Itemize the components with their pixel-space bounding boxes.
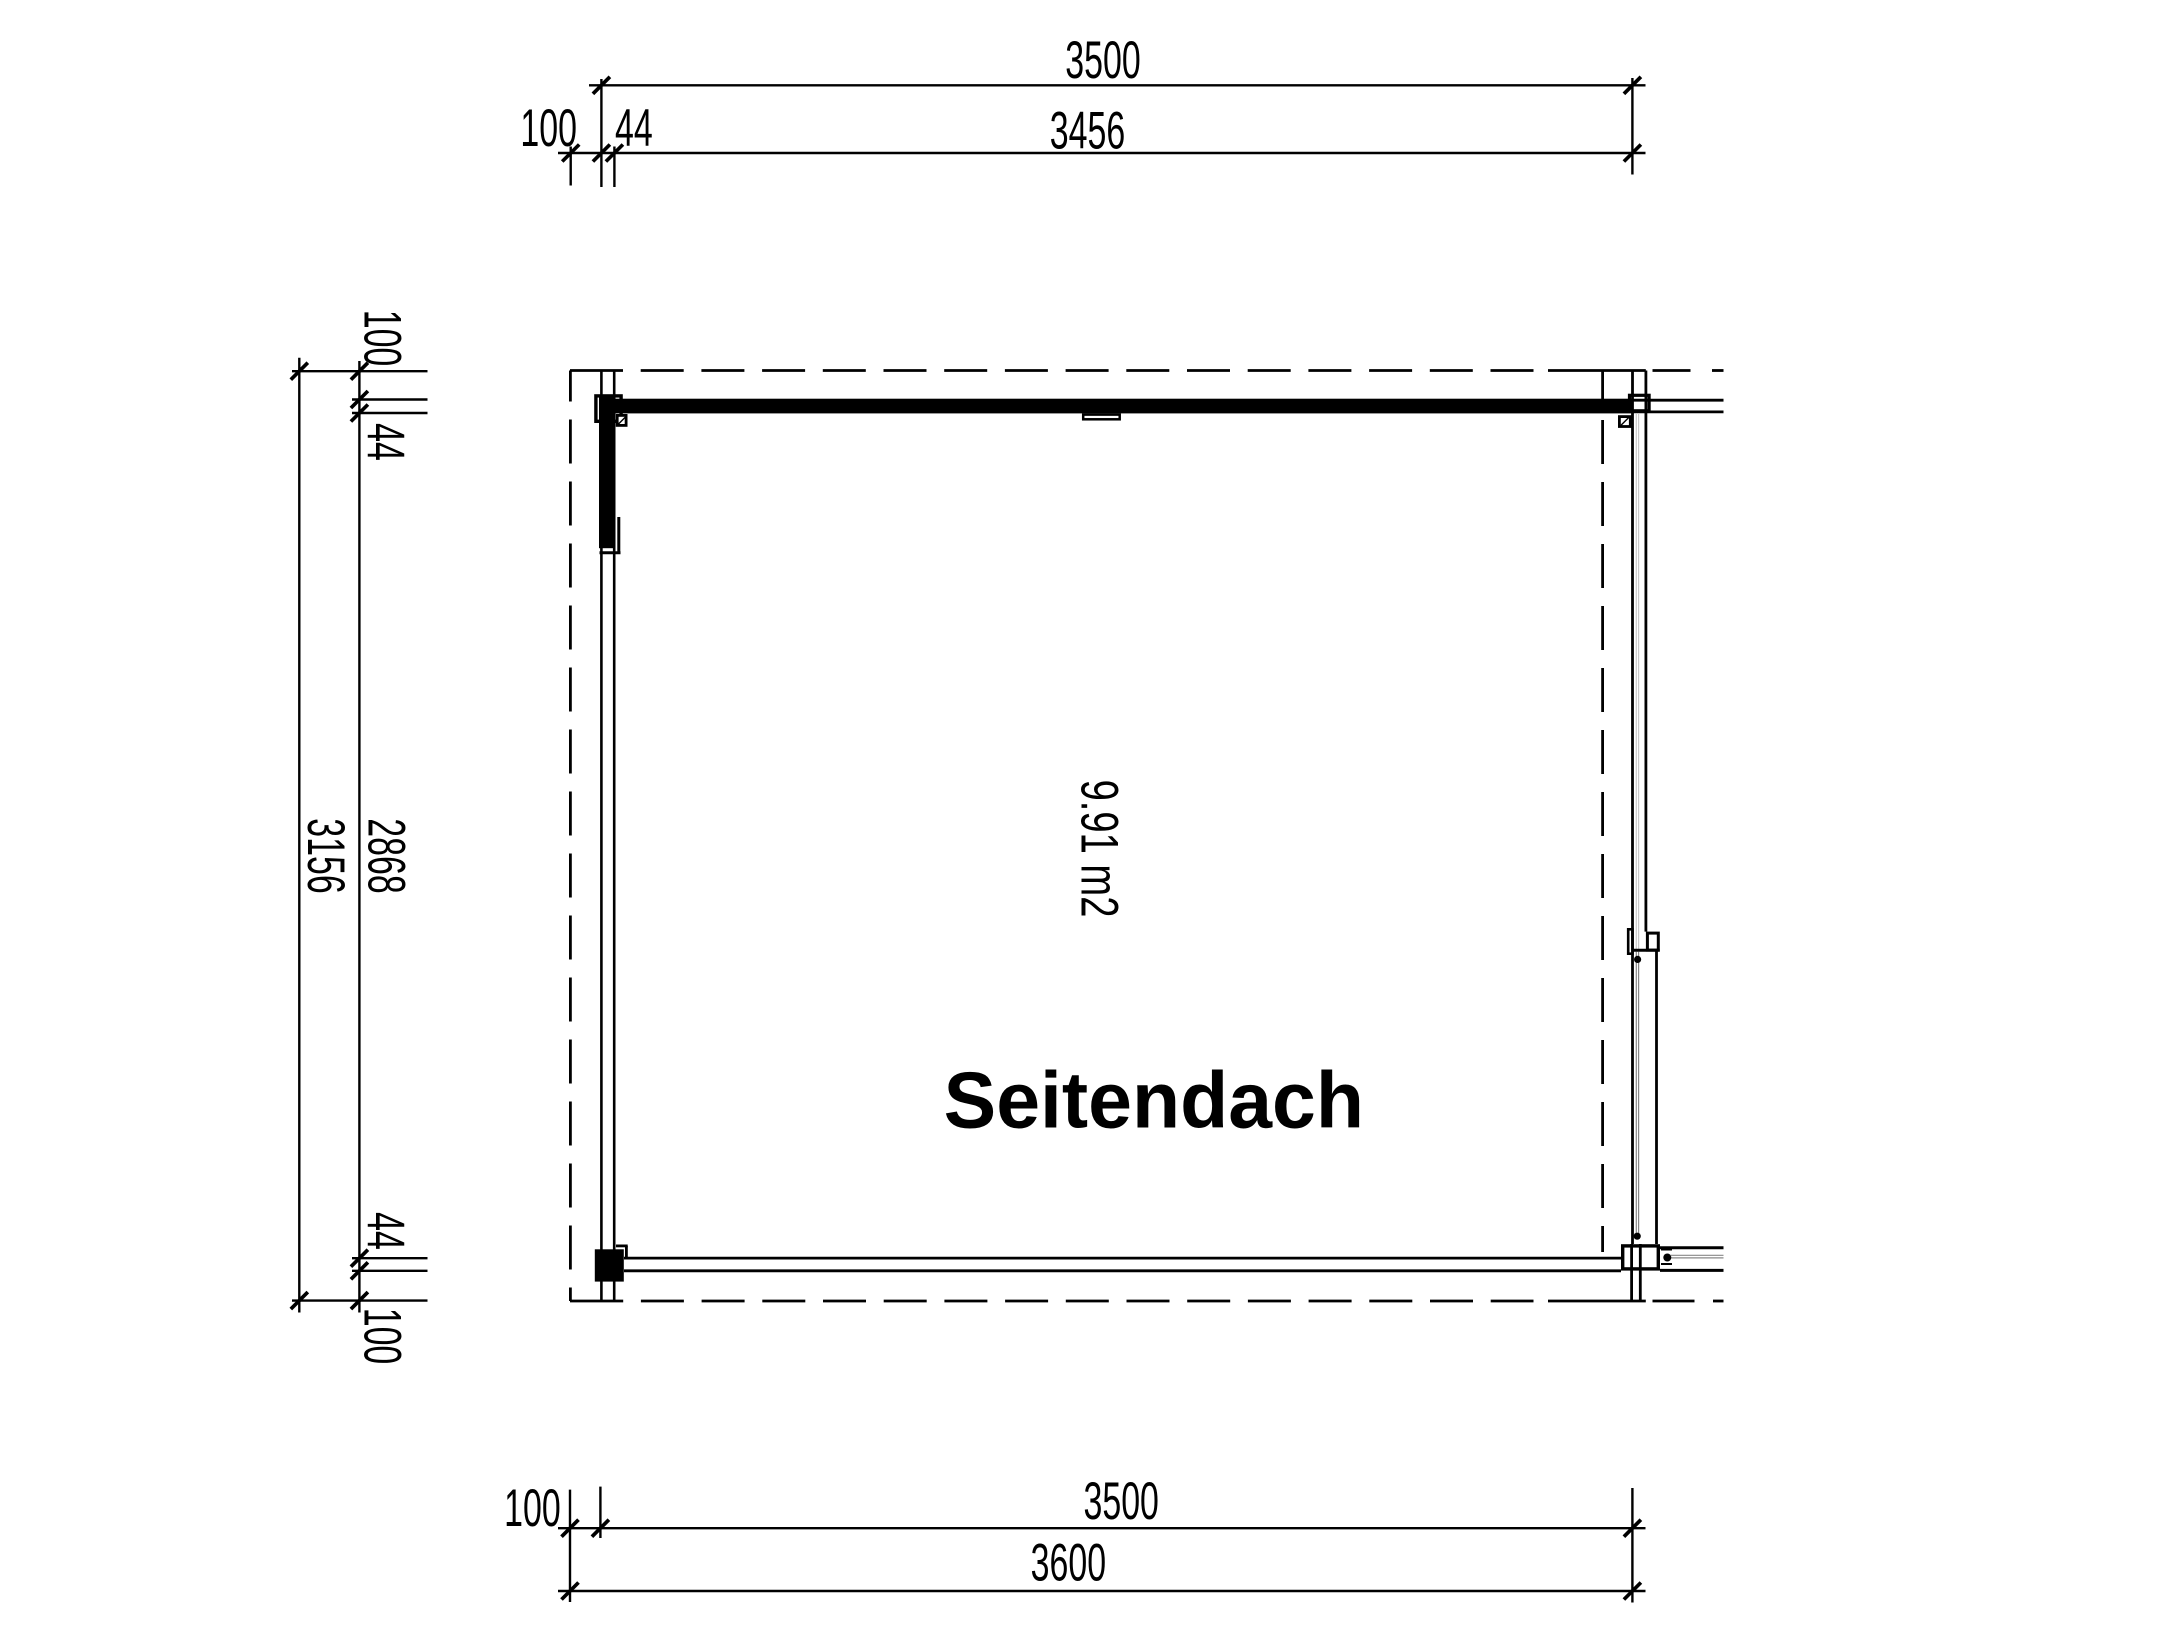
svg-text:44: 44 (356, 1212, 414, 1250)
svg-text:100: 100 (520, 100, 577, 158)
svg-text:9.91 m2: 9.91 m2 (1070, 780, 1130, 918)
svg-text:100: 100 (353, 310, 411, 367)
svg-text:3456: 3456 (1050, 102, 1125, 160)
svg-text:100: 100 (504, 1479, 561, 1537)
svg-text:2868: 2868 (357, 818, 415, 893)
svg-text:3500: 3500 (1083, 1473, 1158, 1531)
svg-text:3600: 3600 (1031, 1534, 1106, 1592)
svg-text:44: 44 (615, 100, 653, 158)
svg-text:3156: 3156 (296, 818, 354, 893)
svg-text:100: 100 (353, 1308, 411, 1365)
svg-text:44: 44 (356, 423, 414, 461)
svg-text:Seitendach: Seitendach (944, 1055, 1364, 1145)
svg-text:3500: 3500 (1065, 32, 1140, 90)
